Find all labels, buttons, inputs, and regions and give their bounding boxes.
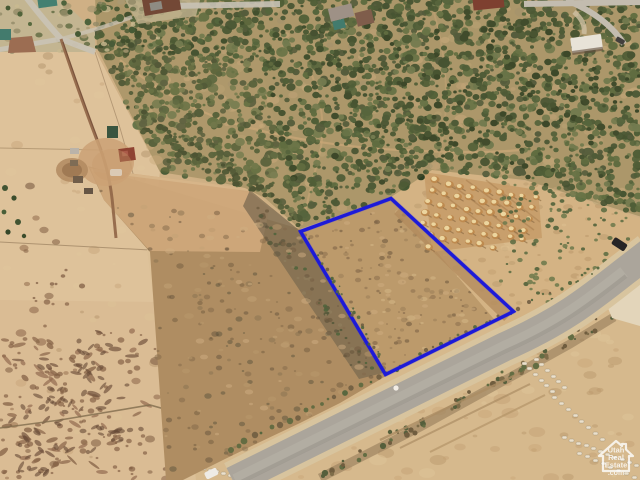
svg-text:Estate: Estate: [605, 461, 628, 470]
svg-text:.com: .com: [608, 470, 624, 477]
